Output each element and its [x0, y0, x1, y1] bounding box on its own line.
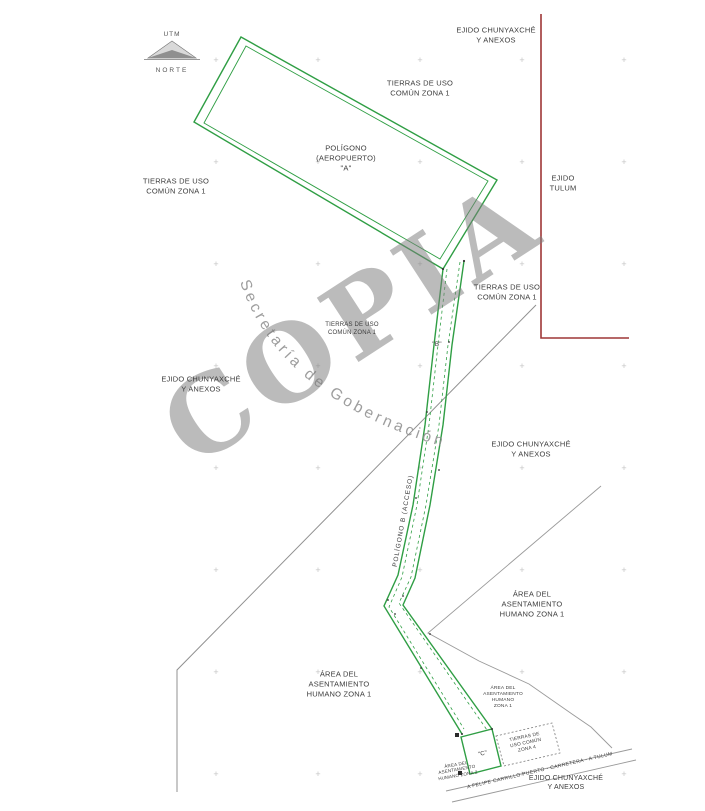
- grid-cross: +: [621, 667, 626, 677]
- grid-cross: +: [213, 667, 218, 677]
- grid-cross: +: [315, 565, 320, 575]
- grid-cross: +: [519, 55, 524, 65]
- utm-grid-crosses: ++++++++++++++++++++++++++++++++++++++++: [213, 55, 626, 779]
- label-ejido-tulum: EJIDO TULUM: [550, 173, 577, 193]
- grid-cross: +: [315, 259, 320, 269]
- grid-cross: +: [213, 463, 218, 473]
- grid-cross: +: [621, 259, 626, 269]
- label-area-asentamiento-left: ÁREA DEL ASENTAMIENTO HUMANO ZONA 1: [307, 669, 372, 698]
- label-tierras-uso-comun-center: TIERRAS DE USO COMÚN ZONA 1: [325, 322, 378, 338]
- corridor-left-line: [384, 269, 462, 734]
- label-ejido-chunyaxche-top: EJIDO CHUNYAXCHÉ Y ANEXOS: [456, 25, 535, 45]
- grid-cross: +: [621, 769, 626, 779]
- grid-cross: +: [519, 463, 524, 473]
- grid-cross: +: [519, 361, 524, 371]
- grid-cross: +: [621, 361, 626, 371]
- grid-cross: +: [213, 55, 218, 65]
- label-ejido-chunyaxche-left: EJIDO CHUNYAXCHÉ Y ANEXOS: [161, 374, 240, 394]
- grid-cross: +: [621, 565, 626, 575]
- grid-cross: +: [315, 55, 320, 65]
- grid-cross: +: [417, 361, 422, 371]
- north-arrow-norte-label: NORTE: [156, 67, 189, 75]
- label-poligono-aeropuerto-a: POLÍGONO (AEROPUERTO) "A": [316, 143, 376, 172]
- grid-cross: +: [315, 769, 320, 779]
- grid-cross: +: [315, 463, 320, 473]
- grid-cross: +: [417, 55, 422, 65]
- grid-cross: +: [621, 463, 626, 473]
- grid-cross: +: [519, 565, 524, 575]
- grid-cross: +: [213, 565, 218, 575]
- label-ejido-chunyaxche-bottom: EJIDO CHUNYAXCHÉ Y ANEXOS: [529, 774, 603, 792]
- grid-cross: +: [417, 259, 422, 269]
- label-tierras-uso-comun-right: TIERRAS DE USO COMÚN ZONA 1: [474, 282, 540, 302]
- grid-cross: +: [213, 361, 218, 371]
- grid-cross: +: [417, 565, 422, 575]
- grid-cross: +: [213, 157, 218, 167]
- monument-mark-top: [455, 733, 459, 737]
- grid-cross: +: [213, 769, 218, 779]
- cadastral-map-page: ++++++++++++++++++++++++++++++++++++++++: [0, 0, 705, 811]
- label-poligono-b: "B": [432, 341, 442, 349]
- grid-cross: +: [621, 55, 626, 65]
- label-area-asentamiento-small: ÁREA DEL ASENTAMIENTO HUMANO ZONA 1: [483, 686, 523, 710]
- north-arrow-icon: [144, 41, 200, 60]
- label-tierras-uso-comun-left: TIERRAS DE USO COMÚN ZONA 1: [143, 176, 209, 196]
- grid-cross: +: [213, 259, 218, 269]
- grid-cross: +: [519, 259, 524, 269]
- label-ejido-chunyaxche-right: EJIDO CHUNYAXCHÉ Y ANEXOS: [491, 439, 570, 459]
- grid-cross: +: [417, 769, 422, 779]
- grid-cross: +: [519, 157, 524, 167]
- grid-cross: +: [519, 667, 524, 677]
- grid-cross: +: [621, 157, 626, 167]
- north-arrow-utm-label: UTM: [163, 31, 180, 39]
- grid-cross: +: [417, 157, 422, 167]
- label-tierras-uso-comun-top: TIERRAS DE USO COMÚN ZONA 1: [387, 78, 453, 98]
- label-area-asentamiento-right: ÁREA DEL ASENTAMIENTO HUMANO ZONA 1: [500, 589, 565, 618]
